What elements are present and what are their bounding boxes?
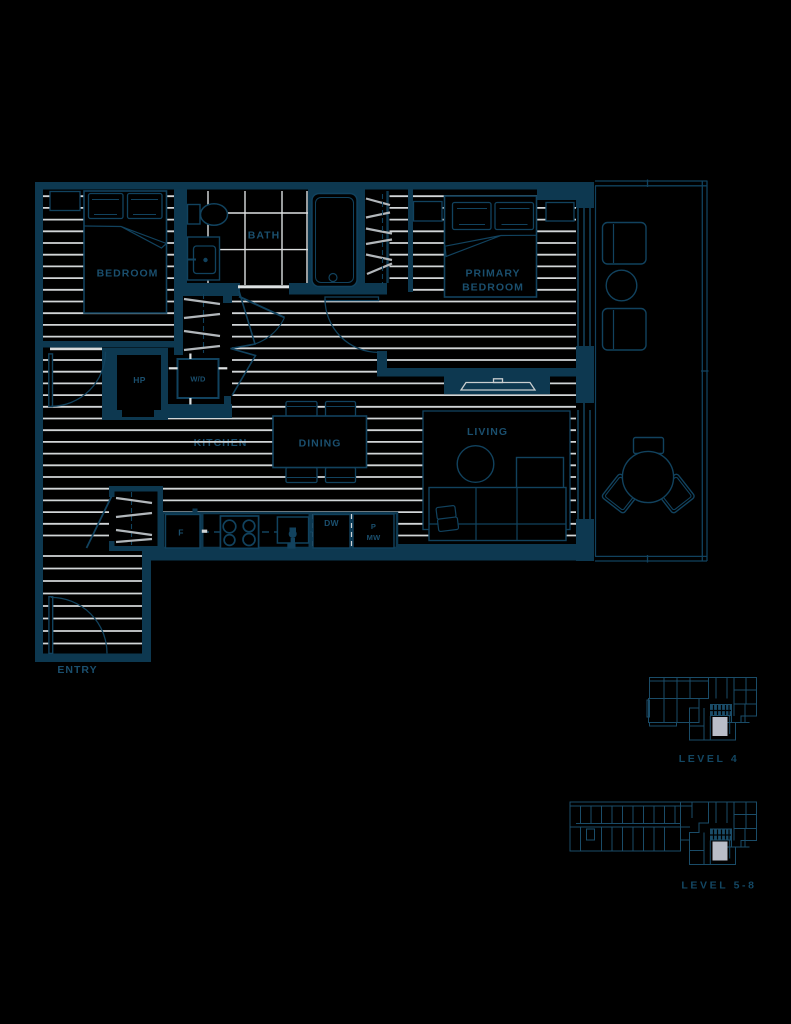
svg-text:LEVEL 4: LEVEL 4 (679, 753, 740, 765)
svg-text:P: P (371, 522, 376, 531)
svg-text:BATH: BATH (248, 230, 280, 242)
svg-text:DW: DW (324, 518, 339, 528)
svg-text:MW: MW (367, 533, 381, 542)
svg-text:PRIMARY: PRIMARY (465, 268, 520, 280)
svg-text:LEVEL 5-8: LEVEL 5-8 (681, 880, 756, 892)
svg-text:LIVING: LIVING (467, 426, 508, 438)
svg-text:DINING: DINING (299, 438, 342, 450)
svg-text:HP: HP (133, 375, 145, 385)
svg-text:ENTRY: ENTRY (57, 664, 97, 676)
svg-text:BEDROOM: BEDROOM (462, 282, 524, 294)
svg-text:KITCHEN: KITCHEN (194, 437, 248, 449)
svg-text:BEDROOM: BEDROOM (97, 268, 159, 280)
svg-text:F: F (178, 528, 184, 538)
svg-text:W/D: W/D (190, 375, 206, 384)
